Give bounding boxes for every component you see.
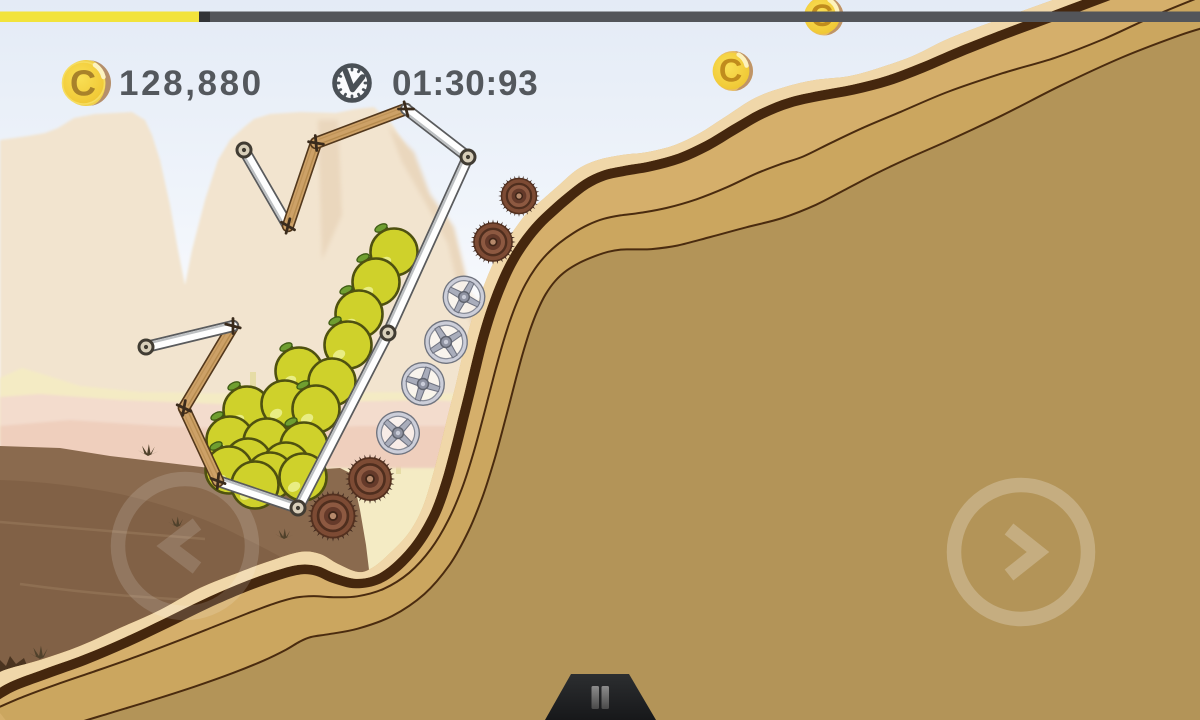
svg-text:128,880: 128,880 xyxy=(119,64,264,103)
svg-text:01:30:93: 01:30:93 xyxy=(392,64,539,103)
svg-text:C: C xyxy=(70,63,96,104)
svg-text:C: C xyxy=(719,52,742,88)
